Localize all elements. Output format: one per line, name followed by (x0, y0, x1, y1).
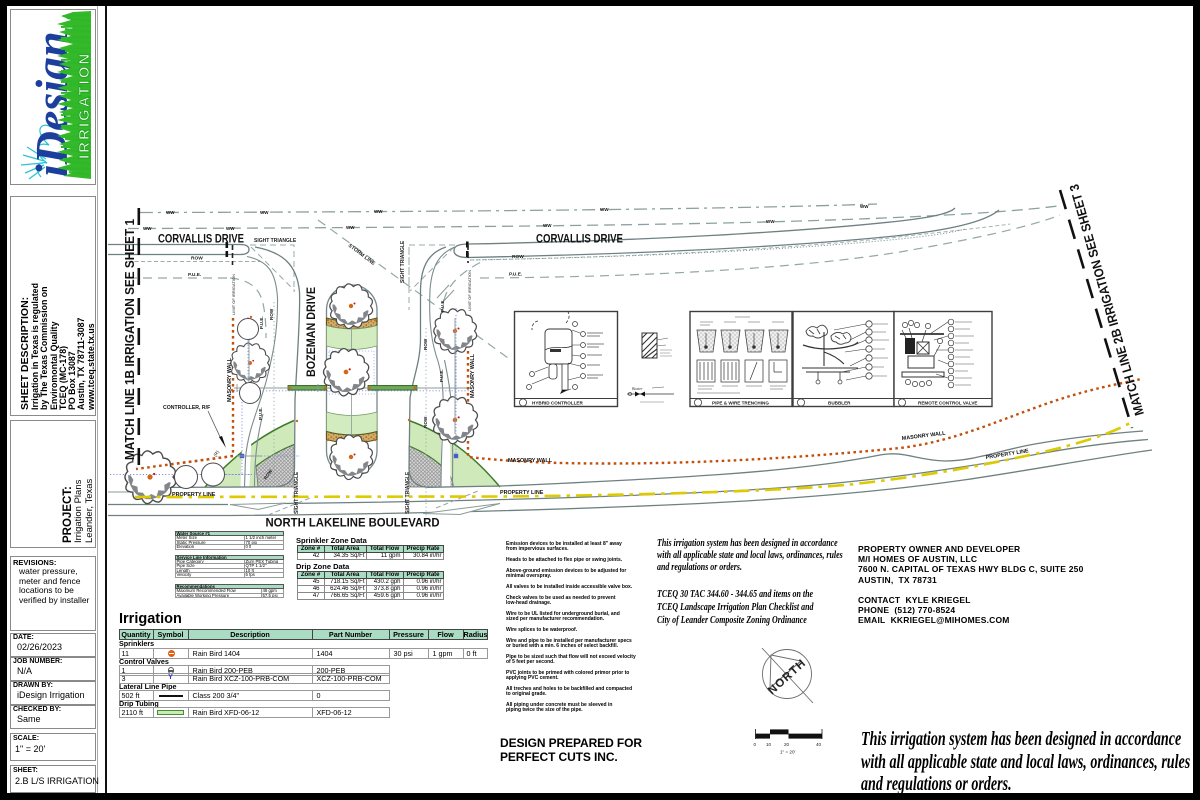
svg-text:LIMIT OF IRRIGATION: LIMIT OF IRRIGATION (231, 274, 236, 315)
svg-text:WW: WW (166, 210, 175, 215)
svg-text:WW: WW (226, 226, 235, 231)
svg-text:BUBBLER: BUBBLER (828, 401, 851, 406)
svg-text:P.U.E.: P.U.E. (439, 369, 444, 382)
svg-text:NORTH LAKELINE BOULEVARD: NORTH LAKELINE BOULEVARD (266, 518, 440, 530)
svg-text:BOZEMAN DRIVE: BOZEMAN DRIVE (304, 287, 318, 377)
svg-text:ROW: ROW (269, 308, 274, 320)
svg-text:CORVALLIS DRIVE: CORVALLIS DRIVE (158, 234, 244, 246)
svg-text:ROW: ROW (423, 416, 428, 428)
svg-text:WW: WW (346, 225, 355, 230)
svg-text:MATCH LINE 2B IRRIGATION SEE S: MATCH LINE 2B IRRIGATION SEE SHEET 3 (1066, 182, 1147, 417)
svg-text:MATCH LINE 1B IRRIGATION SEE S: MATCH LINE 1B IRRIGATION SEE SHEET 1 (122, 219, 137, 460)
svg-text:WW: WW (600, 207, 609, 212)
svg-text:MASONRY WALL: MASONRY WALL (508, 458, 553, 464)
svg-text:(R): (R) (213, 449, 221, 457)
svg-text:WW: WW (766, 219, 775, 224)
svg-text:WW: WW (860, 204, 869, 209)
svg-text:ROW: ROW (191, 256, 203, 262)
svg-text:LIMIT OF IRRIGATION: LIMIT OF IRRIGATION (467, 270, 472, 311)
svg-text:1" = 20': 1" = 20' (780, 750, 796, 755)
svg-text:STORM LINE: STORM LINE (347, 243, 377, 267)
svg-text:ROW: ROW (512, 254, 524, 260)
svg-text:20: 20 (784, 742, 790, 747)
svg-text:SIGHT TRIANGLE: SIGHT TRIANGLE (294, 471, 300, 514)
svg-text:CORVALLIS DRIVE: CORVALLIS DRIVE (536, 234, 623, 246)
svg-text:SIGHT TRIANGLE: SIGHT TRIANGLE (405, 471, 411, 514)
svg-text:SIGHT TRIANGLE: SIGHT TRIANGLE (254, 238, 297, 244)
svg-text:MASONRY WALL: MASONRY WALL (902, 431, 947, 442)
svg-text:HYBRID CONTROLLER: HYBRID CONTROLLER (532, 401, 583, 406)
svg-text:P.U.E.: P.U.E. (188, 272, 201, 278)
svg-text:Baxter: Baxter (632, 386, 643, 391)
svg-text:SIGHT TRIANGLE: SIGHT TRIANGLE (400, 240, 406, 283)
svg-text:ROW: ROW (423, 338, 428, 350)
svg-text:P.U.E.: P.U.E. (509, 272, 522, 278)
svg-text:PIPE & WIRE TRENCHING: PIPE & WIRE TRENCHING (712, 401, 769, 406)
svg-text:WW: WW (543, 223, 552, 228)
svg-text:40: 40 (816, 742, 822, 747)
svg-text:PROPERTY LINE: PROPERTY LINE (172, 492, 216, 498)
svg-text:MASONRY WALL: MASONRY WALL (470, 353, 476, 398)
svg-text:WW: WW (374, 209, 383, 214)
svg-text:0: 0 (754, 742, 757, 747)
svg-text:10: 10 (766, 742, 772, 747)
svg-text:WW: WW (260, 210, 269, 215)
svg-text:MASONRY WALL: MASONRY WALL (227, 357, 233, 402)
svg-text:WW: WW (143, 226, 152, 231)
svg-text:P.U.E.: P.U.E. (440, 299, 445, 312)
svg-text:P.U.E.: P.U.E. (259, 316, 264, 329)
svg-text:REMOTE CONTROL VALVE: REMOTE CONTROL VALVE (918, 401, 977, 406)
svg-text:PROPERTY LINE: PROPERTY LINE (500, 490, 544, 496)
svg-text:P.U.E.: P.U.E. (258, 407, 263, 420)
svg-text:CONTROLLER, R/F: CONTROLLER, R/F (163, 405, 210, 411)
